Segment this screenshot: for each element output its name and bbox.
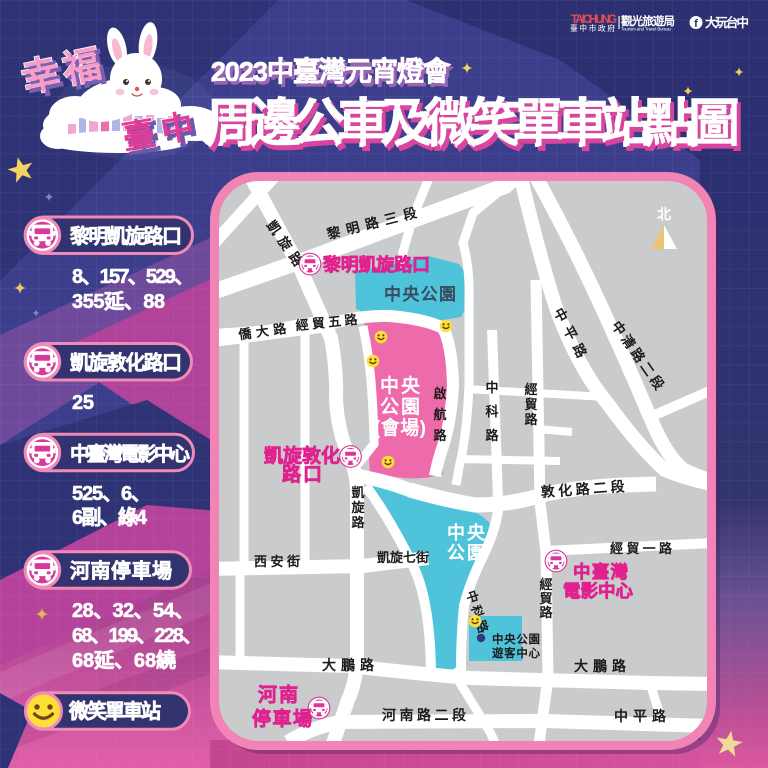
svg-text:Tourism and Travel Bureau: Tourism and Travel Bureau	[621, 27, 672, 32]
svg-text:大鵬路: 大鵬路	[322, 657, 375, 673]
svg-text:中央公園: 中央公園	[384, 284, 456, 304]
svg-text:公園: 公園	[380, 396, 420, 418]
svg-text:經: 經	[539, 577, 552, 592]
svg-text:路口: 路口	[282, 463, 322, 486]
svg-text:啟: 啟	[433, 386, 447, 401]
svg-text:河南停車場: 河南停車場	[70, 559, 172, 583]
svg-text:2023中臺灣元宵燈會: 2023中臺灣元宵燈會	[211, 56, 451, 87]
svg-text:(會場): (會場)	[374, 416, 426, 439]
svg-text:中央公園: 中央公園	[492, 632, 540, 646]
svg-text:中平路: 中平路	[614, 708, 667, 724]
svg-text:凱旋七街: 凱旋七街	[377, 550, 429, 565]
svg-text:凱旋敦化路口: 凱旋敦化路口	[70, 351, 182, 375]
svg-text:西安街: 西安街	[254, 554, 300, 569]
svg-text:中央: 中央	[380, 374, 421, 397]
svg-text:6副、綠4: 6副、綠4	[72, 505, 148, 529]
svg-text:25: 25	[72, 392, 94, 414]
svg-text:大玩台中: 大玩台中	[705, 15, 749, 30]
svg-text:河南路二段: 河南路二段	[382, 707, 466, 723]
svg-text:大鵬路: 大鵬路	[574, 658, 627, 674]
svg-text:68延、68繞: 68延、68繞	[72, 648, 176, 672]
svg-text:8、157、529、: 8、157、529、	[72, 266, 194, 288]
svg-text:科: 科	[485, 404, 498, 419]
svg-text:黎明凱旋路口: 黎明凱旋路口	[323, 254, 430, 275]
svg-text:旋: 旋	[350, 500, 365, 515]
svg-text:微笑單車站: 微笑單車站	[68, 699, 161, 723]
svg-text:貿: 貿	[524, 397, 537, 412]
svg-text:黎明凱旋路口: 黎明凱旋路口	[70, 224, 182, 248]
svg-text:中: 中	[485, 380, 498, 395]
svg-text:中央: 中央	[447, 522, 486, 543]
svg-text:電影中心: 電影中心	[563, 581, 634, 601]
svg-text:路: 路	[524, 412, 538, 427]
svg-text:路: 路	[433, 428, 447, 443]
svg-text:航: 航	[433, 407, 446, 422]
svg-text:貿: 貿	[539, 591, 552, 606]
svg-text:路: 路	[485, 428, 499, 443]
svg-text:路: 路	[539, 605, 553, 620]
svg-text:525、6、: 525、6、	[72, 483, 151, 505]
svg-text:28、32、54、: 28、32、54、	[72, 600, 194, 622]
svg-text:中臺灣: 中臺灣	[573, 562, 629, 582]
svg-text:臺中市政府: 臺中市政府	[570, 23, 615, 33]
svg-text:路: 路	[351, 515, 365, 530]
svg-text:周邊公車及微笑單車站點圖: 周邊公車及微笑單車站點圖	[206, 95, 740, 152]
svg-text:68、199、228、: 68、199、228、	[72, 625, 202, 647]
svg-text:北: 北	[657, 206, 671, 222]
svg-text:停車場: 停車場	[252, 707, 312, 730]
svg-text:遊客中心: 遊客中心	[492, 646, 541, 660]
svg-text:中臺灣電影中心: 中臺灣電影中心	[70, 443, 190, 466]
svg-text:f: f	[694, 18, 698, 30]
svg-text:經: 經	[524, 382, 537, 397]
svg-text:355延、88: 355延、88	[72, 289, 165, 313]
svg-text:河南: 河南	[258, 684, 298, 706]
svg-text:凱: 凱	[351, 485, 364, 500]
